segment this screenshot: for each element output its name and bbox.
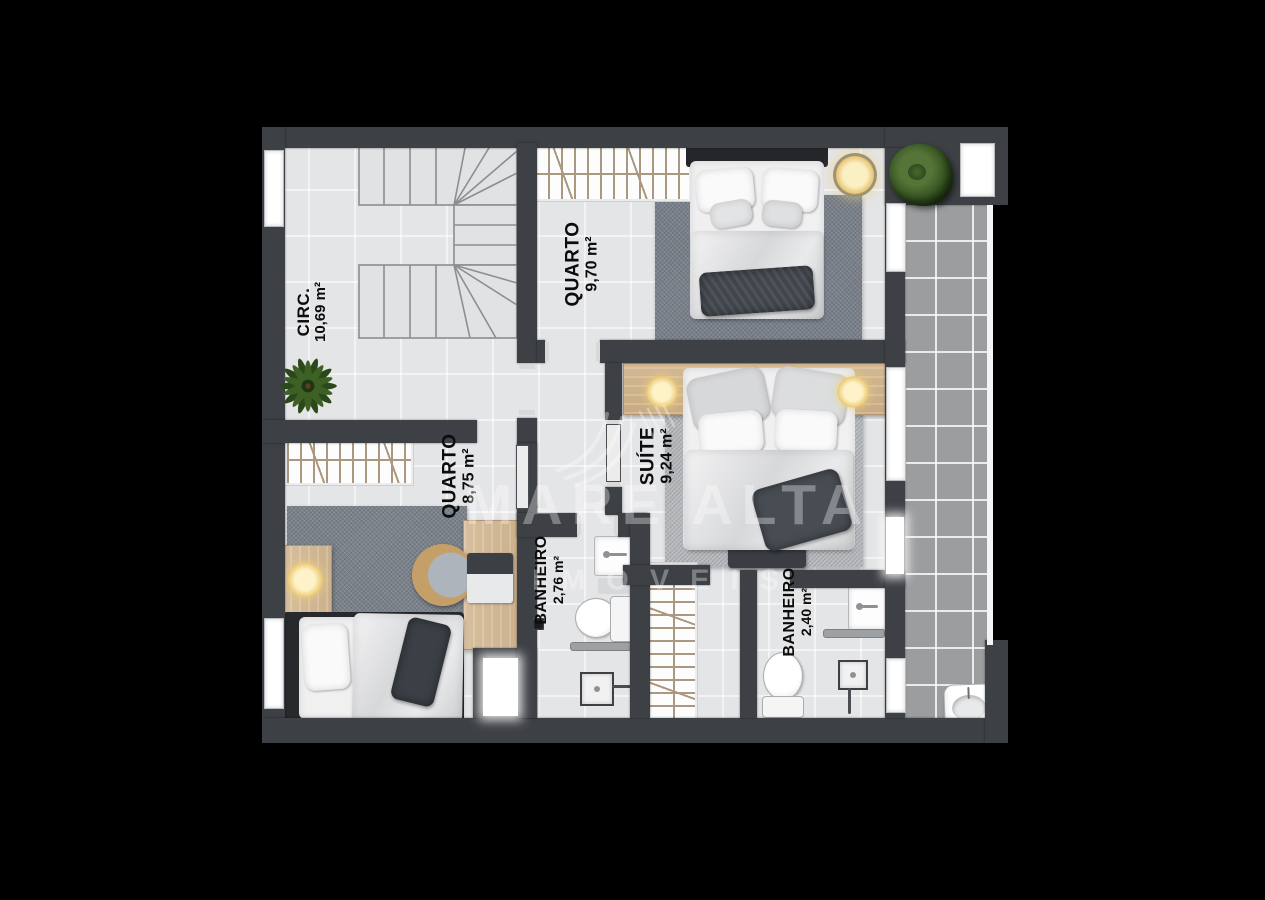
tank-faucet	[967, 687, 969, 699]
floor-lamp	[833, 153, 877, 197]
towel-bar	[570, 642, 634, 651]
label-quarto-top: QUARTO 9,70 m²	[562, 222, 601, 307]
room-area: 9,70 m²	[584, 222, 602, 307]
towel-bar	[823, 629, 885, 638]
watermark-subtitle: IMÓVEIS	[532, 565, 800, 598]
wall-circ-quarto	[517, 143, 537, 363]
toilet-bowl	[763, 652, 803, 700]
desk-chair	[412, 544, 474, 606]
room-area: 10,69 m²	[313, 282, 330, 342]
pillow	[774, 408, 838, 453]
wall-bottom	[262, 718, 1008, 743]
window-suite-terrace	[886, 367, 906, 481]
terrace-floor	[898, 203, 992, 720]
wall-banheiro-closet	[630, 513, 650, 718]
potted-bush	[889, 144, 953, 206]
faucet-spout	[862, 605, 878, 608]
dark-throw	[699, 265, 816, 317]
window-top-right	[960, 143, 995, 197]
room-name: QUARTO	[562, 222, 583, 307]
bed-quarto-top	[686, 139, 828, 321]
door-jamb	[519, 364, 535, 369]
door-suite-terrace	[886, 517, 904, 574]
label-circ: CIRC. 10,69 m²	[294, 282, 330, 342]
room-area: 2,40 m²	[799, 567, 815, 656]
toilet-cistern	[762, 696, 804, 718]
shower-head	[580, 672, 614, 706]
terrace-glass-railing	[987, 205, 993, 645]
door-jamb	[519, 410, 535, 415]
door-jamb	[545, 342, 549, 361]
table-lamp	[287, 562, 323, 598]
window-quarto-terrace	[886, 203, 906, 272]
sink	[848, 586, 888, 630]
door-quarto-banheiro	[483, 658, 518, 716]
laptop-keyboard	[471, 577, 509, 597]
window-circ	[264, 150, 284, 227]
bed-quarto-bottom	[283, 612, 465, 724]
shower-head	[838, 660, 868, 690]
wall-quarto-bottom-stub	[537, 340, 545, 363]
pillow	[761, 199, 803, 229]
floor-plan-canvas: MARE ALTA IMÓVEIS CIRC. 10,69 m² QUARTO …	[0, 0, 1265, 900]
window-quarto-bottom	[264, 618, 284, 709]
potted-palm	[276, 354, 340, 418]
room-name: QUARTO	[439, 434, 460, 519]
wall-right-bottom	[985, 640, 1008, 743]
wardrobe-quarto-top	[533, 145, 691, 201]
watermark-brand: MARE ALTA	[465, 472, 871, 538]
laptop	[467, 553, 513, 603]
door-jamb	[596, 342, 600, 361]
wall-quarto-suite	[600, 340, 905, 363]
wall-top	[262, 127, 905, 148]
pillow	[301, 622, 351, 691]
staircase	[358, 143, 518, 339]
window-banheiro2-terrace	[886, 658, 906, 713]
room-name: CIRC.	[294, 282, 313, 342]
suite-lamp-right	[837, 376, 869, 408]
shower-pole	[848, 688, 851, 714]
faucet-spout	[609, 553, 627, 556]
